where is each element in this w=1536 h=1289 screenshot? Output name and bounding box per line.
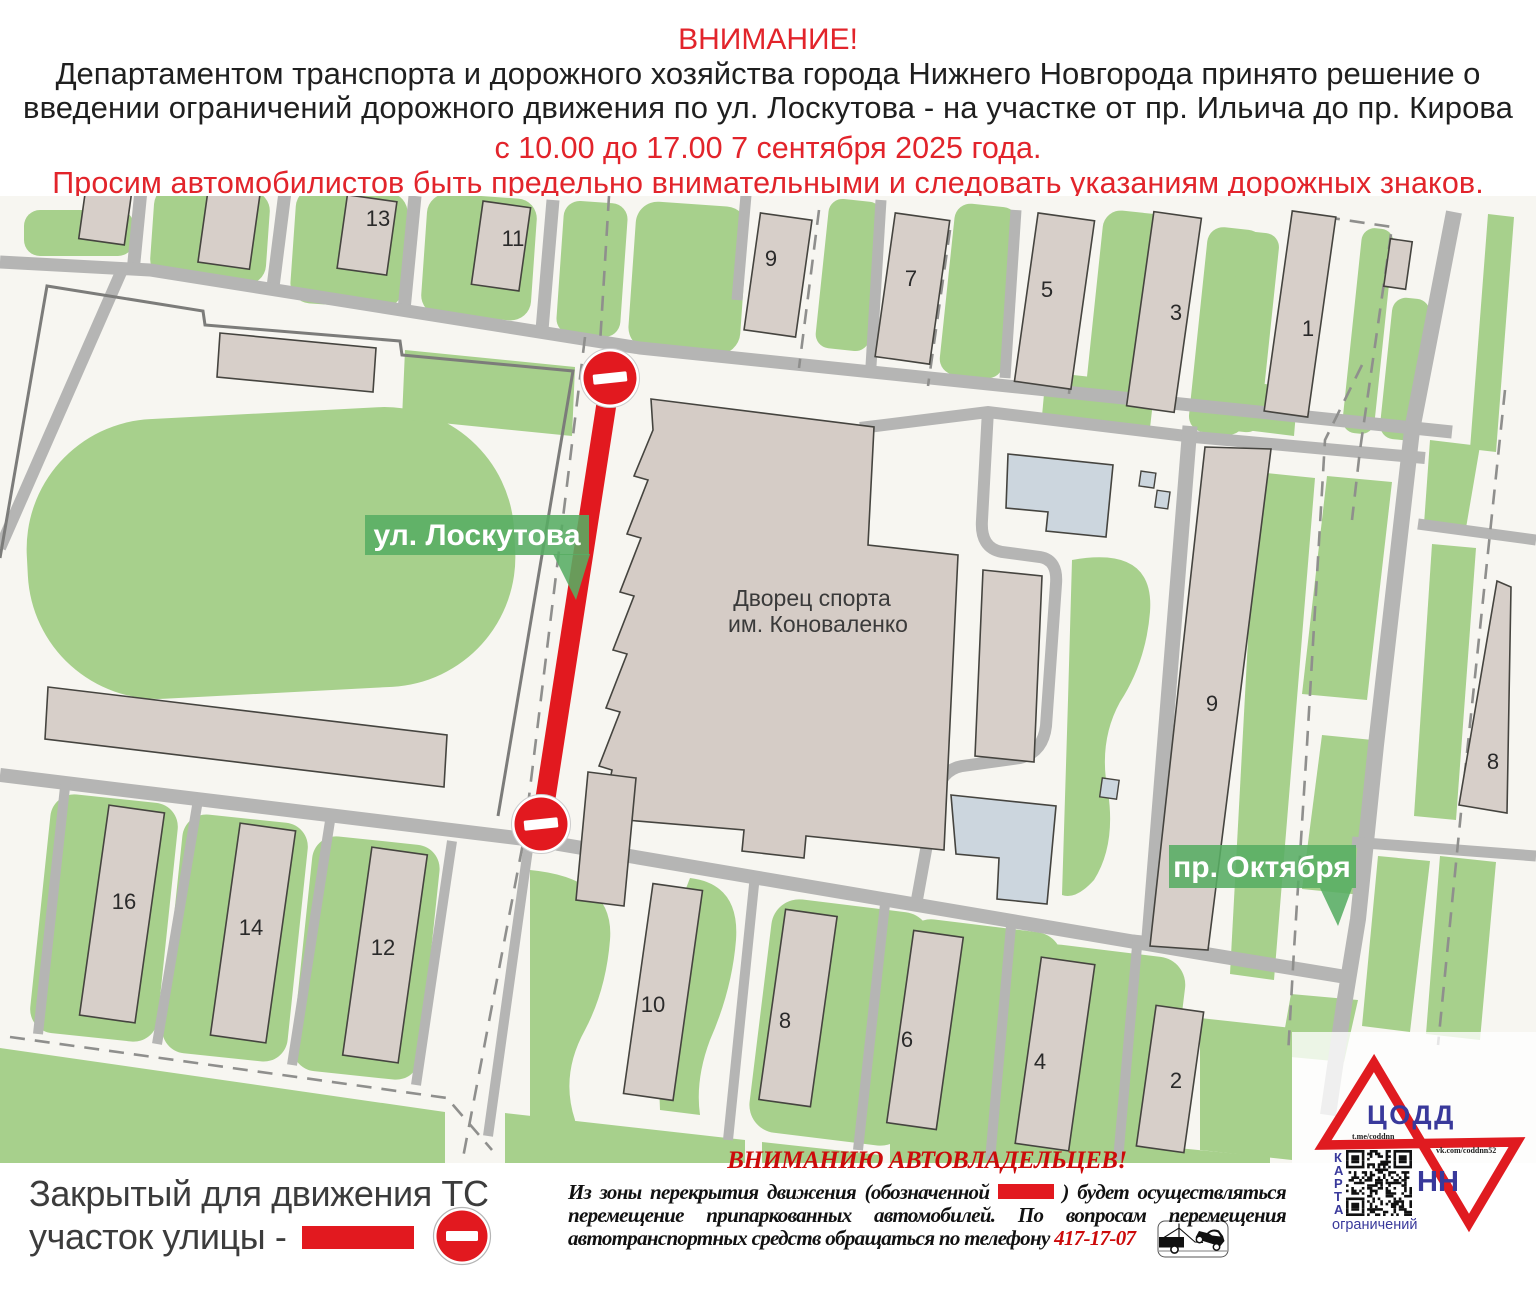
svg-text:им. Коноваленко: им. Коноваленко [728,611,908,637]
svg-text:пр. Октября: пр. Октября [1173,851,1351,884]
svg-text:А: А [1334,1202,1344,1217]
svg-text:9: 9 [1206,691,1218,716]
svg-text:13: 13 [366,206,390,231]
svg-text:6: 6 [901,1027,913,1052]
svg-text:ул. Лоскутова: ул. Лоскутова [373,519,580,552]
svg-text:1: 1 [1302,316,1314,341]
svg-text:8: 8 [779,1008,791,1033]
svg-text:4: 4 [1034,1049,1046,1074]
svg-text:12: 12 [371,935,395,960]
svg-text:16: 16 [112,889,136,914]
svg-text:10: 10 [641,992,665,1017]
svg-text:5: 5 [1041,277,1053,302]
svg-text:3: 3 [1170,300,1182,325]
svg-text:vk.com/coddnn52: vk.com/coddnn52 [1436,1146,1496,1155]
svg-text:Дворец спорта: Дворец спорта [733,585,891,611]
svg-text:t.me/coddnn: t.me/coddnn [1352,1132,1395,1141]
svg-text:ЦОДД: ЦОДД [1367,1100,1456,1130]
svg-text:11: 11 [502,226,525,251]
svg-text:7: 7 [905,266,917,291]
svg-text:9: 9 [765,246,777,271]
svg-text:14: 14 [239,915,263,940]
svg-text:НН: НН [1417,1166,1459,1198]
svg-text:2: 2 [1170,1068,1182,1093]
svg-text:8: 8 [1487,749,1499,774]
svg-text:ограничений: ограничений [1332,1217,1417,1233]
